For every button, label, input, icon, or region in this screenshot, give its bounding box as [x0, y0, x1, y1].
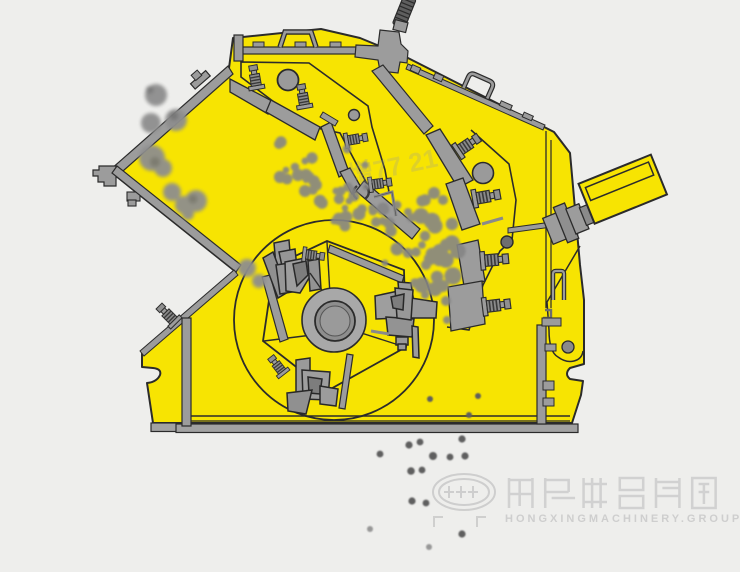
svg-text:HONGXINGMACHINERY.GROUP: HONGXINGMACHINERY.GROUP [505, 513, 740, 525]
